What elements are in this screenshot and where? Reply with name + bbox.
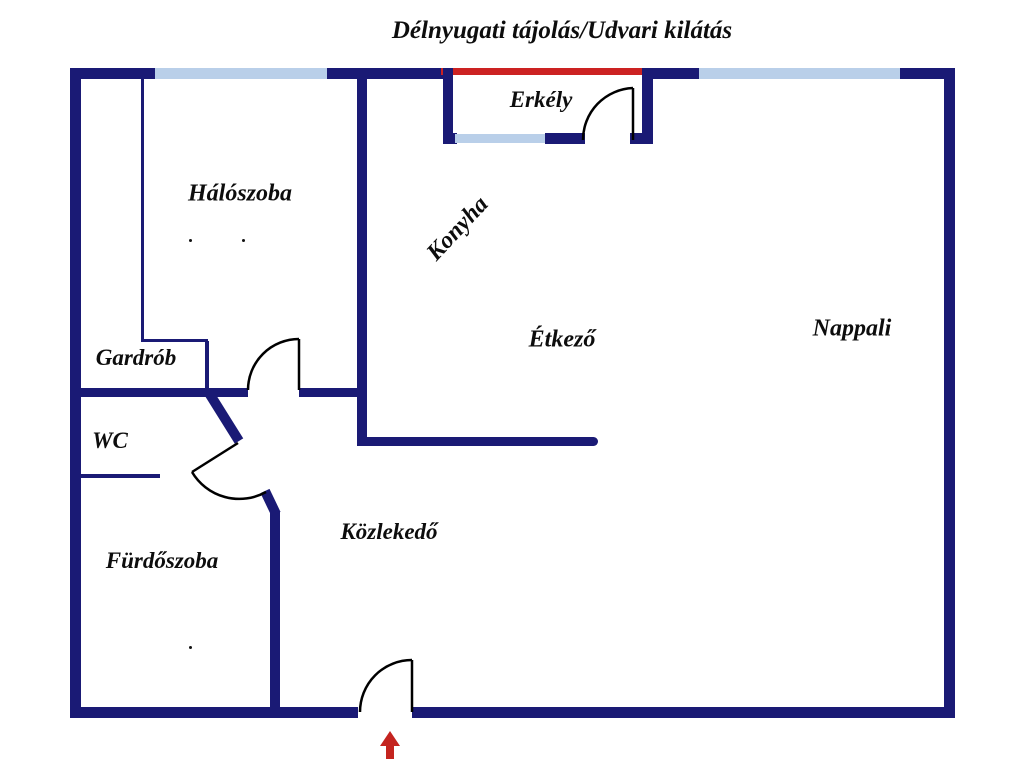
- window-living-room: [699, 68, 900, 79]
- room-label-bedroom: Hálószoba: [188, 181, 292, 208]
- plan-dot-1: [189, 239, 192, 242]
- half-wall-dining: [357, 437, 598, 446]
- plan-dot-3: [189, 646, 192, 649]
- room-label-hallway: Közlekedő: [340, 519, 437, 545]
- wall-hall-segment-1: [70, 388, 248, 397]
- entrance-door-arc: [360, 660, 412, 712]
- bedroom-door-arc: [248, 339, 299, 390]
- wall-bathroom-hall: [270, 511, 280, 711]
- wall-wardrobe-thin-vertical: [141, 79, 144, 341]
- wall-wardrobe-thin-horizontal: [141, 339, 208, 342]
- wall-bottom-segment-1: [70, 707, 358, 718]
- wall-hall-segment-2: [299, 388, 367, 397]
- bathroom-door-leaf: [192, 443, 238, 472]
- doors-overlay: [0, 0, 1024, 768]
- room-label-wardrobe: Gardrób: [96, 345, 177, 371]
- wall-right: [944, 68, 955, 718]
- wall-top-segment-3: [653, 68, 699, 79]
- room-label-kitchen: Konyha: [422, 192, 495, 267]
- entrance-arrow-icon: [380, 731, 400, 759]
- wall-angled-wc: [209, 393, 239, 441]
- wall-wc-partition: [72, 474, 160, 478]
- bathroom-door-arc: [192, 472, 266, 499]
- room-label-wc: WC: [92, 428, 128, 454]
- plan-title: Délnyugati tájolás/Udvari kilátás: [392, 17, 732, 45]
- room-label-balcony: Erkély: [510, 87, 573, 113]
- room-label-dining: Étkező: [529, 327, 596, 354]
- wall-top-segment-1: [70, 68, 155, 79]
- wall-wardrobe-thin-right: [205, 341, 209, 389]
- room-label-living: Nappali: [813, 316, 892, 343]
- balcony-sill-corner: [630, 133, 653, 144]
- room-label-bathroom: Fürdőszoba: [106, 548, 218, 574]
- wall-bottom-segment-2: [412, 707, 955, 718]
- floorplan-canvas: Délnyugati tájolás/Udvari kilátás Hálósz…: [0, 0, 1024, 768]
- window-bedroom: [155, 68, 327, 79]
- balcony-sill-mid: [545, 133, 585, 144]
- balcony-door-arc: [583, 88, 633, 140]
- wall-top-segment-2: [327, 68, 443, 79]
- balcony-open-edge: [441, 68, 643, 75]
- plan-dot-2: [242, 239, 245, 242]
- window-balcony: [455, 134, 545, 143]
